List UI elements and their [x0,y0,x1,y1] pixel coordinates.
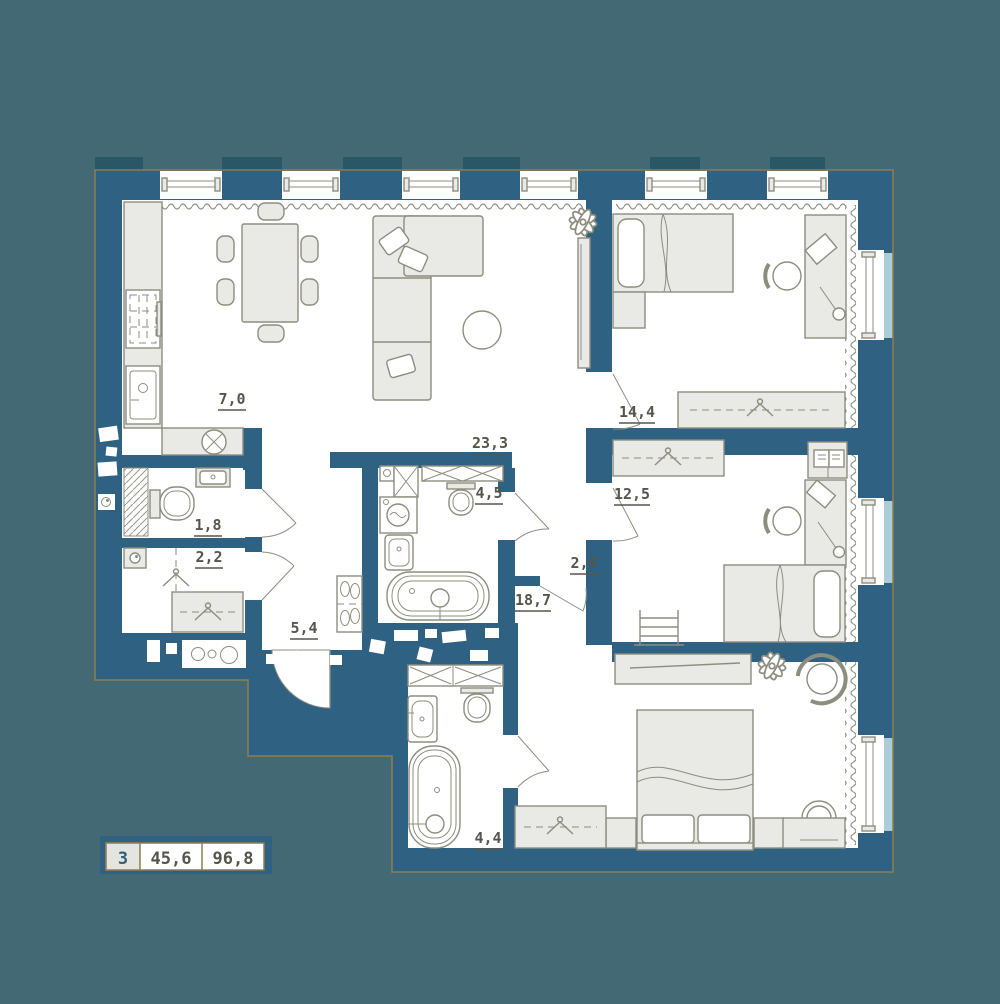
room-label-bathroom-top: 4,5 [475,484,502,502]
room-label-corridor: 2,6 [570,554,597,572]
nightstand [613,292,645,328]
meter-box [380,466,394,481]
closet-cabinet [172,592,243,632]
window-icon [282,171,340,199]
pillow [642,815,694,843]
nightstand [606,818,636,848]
room-label-closet: 2,2 [195,548,222,566]
spotlight-icon [124,548,146,568]
legend: 3 45,6 96,8 [100,836,272,874]
toilet [461,688,493,722]
window-icon [402,171,460,199]
tv-console [615,654,751,684]
room-label-living: 23,3 [472,434,508,452]
sink [385,535,413,570]
nightstand [754,818,784,848]
tv-unit [578,238,590,368]
sink [196,468,230,487]
pillow [698,815,750,843]
bed [613,214,733,292]
double-bed [637,710,753,850]
coffee-table [463,311,501,349]
room-label-hallway: 5,4 [290,619,317,637]
floor-plan: 7,0 23,3 14,4 12,5 2,6 18,7 1,8 2,2 5,4 … [0,0,1000,1000]
bathtub [387,572,489,620]
wardrobe [515,806,606,848]
chair [258,325,284,342]
stove [126,290,161,348]
bathtub [408,746,460,848]
legend-living-area: 45,6 [151,849,192,869]
windows-right [858,250,893,833]
wardrobe [613,440,724,476]
sink [408,696,437,742]
legend-rooms-count: 3 [118,849,128,869]
room-label-bathroom-bottom: 4,4 [474,829,501,847]
window-icon [767,171,828,199]
chair [217,236,234,262]
kitchen-sink [126,366,160,424]
wardrobe [678,392,845,428]
window-icon [645,171,707,199]
cooktop-hood-icon [202,430,226,454]
room-label-bedroom-master: 18,7 [515,591,551,609]
room-label-wc: 1,8 [194,516,221,534]
chair [258,203,284,220]
room-label-kitchen: 7,0 [218,390,245,408]
window-icon [858,250,893,340]
window-icon [858,735,893,833]
cabinet-hatched [408,665,503,686]
room-label-bedroom-top: 14,4 [619,403,655,421]
washing-machine [380,497,417,533]
shoe-rack [337,576,362,632]
chair [301,236,318,262]
shaft-hatched [124,468,148,536]
window-icon [520,171,578,199]
bed [724,565,845,642]
laundry-icons [182,640,246,668]
chair [301,279,318,305]
room-label-bedroom-middle: 12,5 [614,485,650,503]
window-icon [858,498,893,585]
window-icon [160,171,222,199]
toilet [447,483,475,515]
chair [217,279,234,305]
toilet [150,487,194,520]
floor-plan-page: 7,0 23,3 14,4 12,5 2,6 18,7 1,8 2,2 5,4 … [0,0,1000,1000]
bookshelf [808,442,847,478]
legend-total-area: 96,8 [213,849,254,869]
